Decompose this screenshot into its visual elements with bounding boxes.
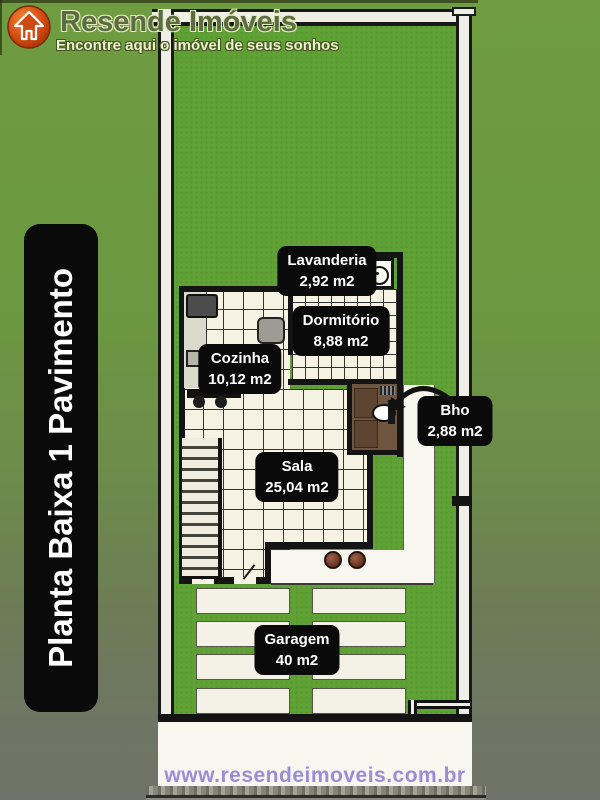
- stairs: [182, 438, 222, 579]
- wall-living-bottom-right: [265, 542, 373, 549]
- brand-tagline: Encontre aqui o imóvel de seus sonhos: [56, 37, 339, 54]
- gate: [408, 700, 470, 709]
- garage-slab: [196, 688, 290, 714]
- bho-arrow: [388, 374, 460, 420]
- room-area: 25,04 m2: [265, 477, 328, 498]
- fence-left: [158, 9, 174, 716]
- room-name: Cozinha: [208, 348, 271, 369]
- plan-title-banner: Planta Baixa 1 Pavimento: [24, 224, 98, 712]
- room-name: Lavanderia: [287, 250, 366, 271]
- room-area: 2,92 m2: [287, 271, 366, 292]
- room-area: 2,88 m2: [427, 421, 482, 442]
- header-border-left: [0, 0, 2, 55]
- plot-bottom-wall: [158, 714, 472, 722]
- room-label-sala: Sala 25,04 m2: [255, 452, 338, 502]
- fence-right: [456, 9, 472, 718]
- room-area: 40 m2: [264, 650, 329, 671]
- plan-title: Planta Baixa 1 Pavimento: [42, 268, 80, 668]
- stool-icon: [215, 396, 227, 408]
- room-area: 10,12 m2: [208, 369, 271, 390]
- fridge-icon: [257, 317, 285, 344]
- room-area: 8,88 m2: [303, 331, 380, 352]
- washer-dot: [376, 272, 379, 275]
- stool-icon: [193, 396, 205, 408]
- room-name: Sala: [265, 456, 328, 477]
- garage-slab: [196, 588, 290, 614]
- garage-slab: [312, 588, 406, 614]
- wall-living-right: [367, 455, 373, 548]
- room-label-lavanderia: Lavanderia 2,92 m2: [277, 246, 376, 296]
- plant-pot-icon: [348, 551, 366, 569]
- header-border: [0, 0, 478, 3]
- stove-icon: [186, 294, 218, 318]
- floorplan-poster: Lavanderia 2,92 m2 Dormitório 8,88 m2 Co…: [0, 0, 600, 800]
- fence-cap: [452, 7, 476, 16]
- garage-slab: [312, 688, 406, 714]
- room-label-cozinha: Cozinha 10,12 m2: [198, 344, 281, 394]
- room-name: Garagem: [264, 629, 329, 650]
- house-arrow-icon: [7, 5, 51, 49]
- room-label-dormitorio: Dormitório 8,88 m2: [293, 306, 390, 356]
- plant-pot-icon: [324, 551, 342, 569]
- bath-door-panel: [354, 420, 378, 448]
- wall-bath-bottom: [347, 450, 403, 455]
- room-label-garagem: Garagem 40 m2: [254, 625, 339, 675]
- brand-title: Resende Imóveis: [60, 6, 297, 39]
- room-name: Dormitório: [303, 310, 380, 331]
- website-url: www.resendeimoveis.com.br: [158, 764, 472, 788]
- fence-post: [452, 496, 472, 506]
- wall-right: [397, 252, 403, 457]
